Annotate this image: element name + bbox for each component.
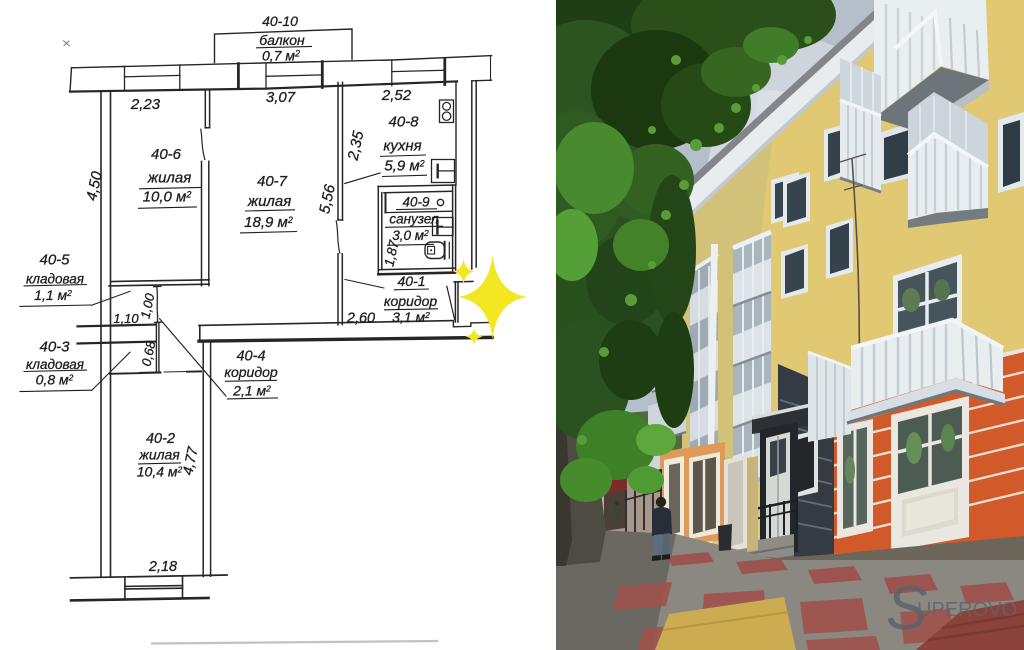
svg-text:2,1 м2: 2,1 м2: [232, 383, 271, 399]
svg-text:3,1 м2: 3,1 м2: [392, 309, 430, 325]
svg-text:санузел: санузел: [389, 212, 439, 227]
svg-text:40-7: 40-7: [257, 173, 288, 190]
svg-text:40-2: 40-2: [146, 431, 175, 447]
svg-text:1,1 м2: 1,1 м2: [34, 287, 72, 303]
svg-text:3,07: 3,07: [266, 89, 296, 106]
svg-text:балкон: балкон: [259, 32, 305, 48]
svg-text:коридор: коридор: [224, 364, 277, 380]
svg-text:40-6: 40-6: [151, 146, 182, 163]
svg-text:1,10: 1,10: [113, 311, 139, 326]
svg-text:UPEROVO: UPEROVO: [917, 599, 1017, 621]
svg-text:2,18: 2,18: [148, 559, 177, 575]
svg-text:0,8 м2: 0,8 м2: [36, 372, 74, 388]
svg-text:жилая: жилая: [138, 447, 180, 463]
svg-text:2,23: 2,23: [130, 96, 161, 113]
svg-text:40-9: 40-9: [402, 195, 430, 210]
svg-text:0,7 м2: 0,7 м2: [262, 47, 300, 63]
svg-text:5,9 м2: 5,9 м2: [384, 158, 424, 175]
svg-text:18,9 м2: 18,9 м2: [244, 214, 293, 231]
svg-text:40-1: 40-1: [397, 273, 425, 289]
svg-text:3,0 м2: 3,0 м2: [392, 228, 429, 243]
svg-text:40-3: 40-3: [39, 338, 70, 355]
svg-text:40-8: 40-8: [388, 114, 419, 131]
svg-text:40-5: 40-5: [39, 251, 70, 268]
svg-text:коридор: коридор: [384, 293, 437, 309]
svg-text:2,60: 2,60: [346, 311, 375, 327]
svg-text:40-10: 40-10: [262, 13, 298, 29]
svg-text:2,52: 2,52: [381, 87, 412, 104]
svg-text:10,4 м2: 10,4 м2: [137, 464, 183, 480]
svg-text:кухня: кухня: [383, 138, 421, 155]
svg-text:жилая: жилая: [247, 193, 291, 210]
svg-text:жилая: жилая: [147, 170, 191, 187]
svg-text:40-4: 40-4: [236, 349, 265, 365]
svg-text:10,0 м2: 10,0 м2: [143, 189, 192, 206]
